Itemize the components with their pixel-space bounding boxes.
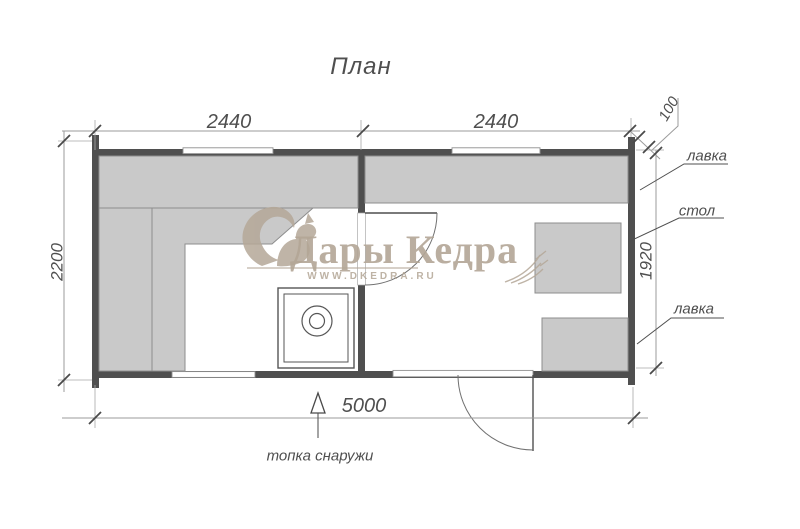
watermark-url-text: WWW.DKEDRA.RU	[307, 272, 437, 282]
window-top-left	[183, 148, 273, 154]
window-bottom-left	[172, 372, 255, 378]
label-bench-lower: лавка	[674, 302, 714, 317]
page-title: План	[330, 55, 391, 79]
label-table: стол	[679, 204, 715, 219]
entry-door-swing	[458, 375, 533, 450]
floor-plan-page: План 2440 2440 100 2200 1920 5000 лавка …	[0, 0, 800, 529]
firebox-arrow-icon	[311, 393, 325, 438]
bench-rest-upper	[365, 156, 628, 203]
wall-left	[92, 135, 99, 388]
dim-bottom-5000: 5000	[342, 396, 387, 416]
window-top-right	[452, 148, 540, 154]
wall-right	[628, 137, 635, 385]
leader-table	[630, 218, 724, 241]
label-bench-upper: лавка	[687, 149, 727, 164]
dim-left-2200: 2200	[49, 243, 66, 281]
watermark-brand-text: Дары Кедра	[290, 230, 518, 270]
wall-partition-upper	[358, 149, 365, 213]
label-firebox-note: топка снаружи	[267, 449, 374, 464]
dim-top-left-2440: 2440	[207, 112, 252, 132]
dim-top-right-2440: 2440	[474, 112, 519, 132]
table-rect	[535, 223, 621, 293]
leader-bench-lower	[637, 318, 724, 344]
entry-door-opening	[393, 370, 533, 376]
wall-partition-lower	[358, 285, 365, 378]
leader-bench-upper	[640, 164, 728, 190]
bench-rest-lower	[542, 318, 628, 371]
stove	[278, 288, 354, 368]
dim-right-1920: 1920	[638, 242, 655, 280]
bench-steam-upper	[99, 156, 358, 208]
